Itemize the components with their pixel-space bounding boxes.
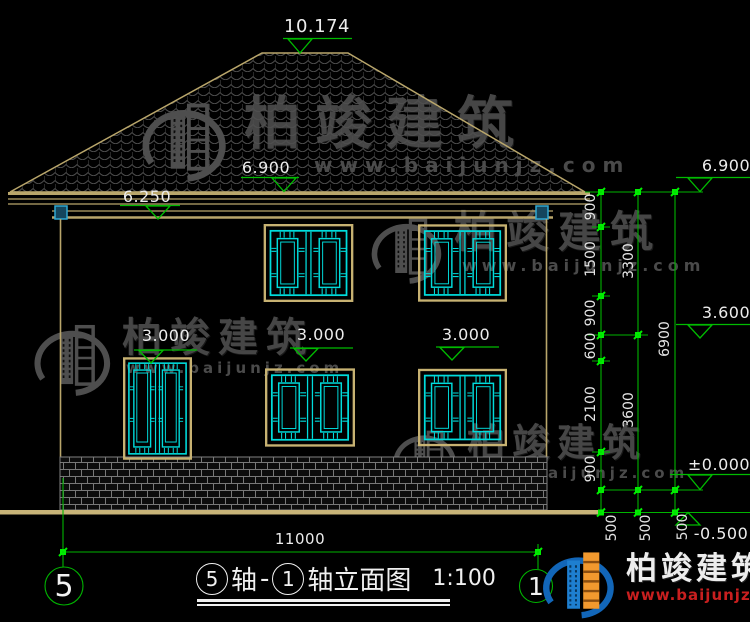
dim-col2-1: 3600 bbox=[621, 378, 637, 442]
drawing-title: 5 轴 - 1 轴立面图 1:100 bbox=[196, 560, 496, 597]
elevation-right-ground: -0.500 bbox=[686, 524, 750, 543]
elevation-eave-center: 6.900 bbox=[231, 158, 301, 177]
window-1f-right bbox=[419, 370, 506, 445]
door-1f-left bbox=[124, 358, 191, 458]
title-scale: 1:100 bbox=[432, 566, 495, 591]
title-word1: 轴 bbox=[231, 560, 257, 597]
elevation-floor1-left: 3.000 bbox=[131, 326, 201, 345]
title-axis-a: 5 bbox=[196, 563, 228, 595]
elevation-floor1-mid: 3.000 bbox=[286, 325, 356, 344]
window-2f-right bbox=[419, 225, 506, 300]
window-2f-left bbox=[265, 225, 352, 301]
gutter-bracket-icon bbox=[55, 206, 67, 219]
title-axis-b: 1 bbox=[272, 563, 304, 595]
title-underline bbox=[197, 604, 450, 606]
elevation-right-eave: 6.900 bbox=[691, 156, 750, 175]
ground-line bbox=[0, 510, 598, 515]
axis-left-label: 5 bbox=[44, 569, 84, 604]
title-underline bbox=[197, 599, 450, 602]
elevation-drawing: 柏竣建筑 www.baijunjz.com 柏竣建筑 www.baijunjz.… bbox=[0, 0, 750, 622]
dim-col2-0: 3300 bbox=[621, 229, 637, 293]
elevation-right-zero: ±0.000 bbox=[684, 455, 750, 474]
dim-bottom-width: 11000 bbox=[265, 530, 335, 548]
eave-lines bbox=[8, 194, 590, 218]
brick-plinth bbox=[60, 457, 547, 510]
brand-url: www.baijunjz.com bbox=[626, 586, 750, 604]
elevation-floor1-right: 3.000 bbox=[431, 325, 501, 344]
title-dash: - bbox=[260, 564, 269, 594]
elevation-right-floor2: 3.600 bbox=[691, 303, 750, 322]
dim-col1-4: 2100 bbox=[583, 372, 599, 436]
dim-col1-5: 900 bbox=[583, 437, 599, 501]
elevation-ridge: 10.174 bbox=[282, 16, 352, 37]
window-1f-mid bbox=[266, 370, 354, 446]
dim-col3-0: 6900 bbox=[657, 307, 673, 371]
brand-logo: 柏竣建筑 www.baijunjz.com bbox=[538, 546, 750, 620]
elevation-eave-left: 6.250 bbox=[112, 187, 182, 206]
dim-col1-3: 600 bbox=[583, 314, 599, 378]
brand-name: 柏竣建筑 bbox=[626, 552, 750, 586]
brand-logo-icon bbox=[538, 546, 622, 620]
gutter-bracket-icon bbox=[536, 206, 548, 219]
title-word2: 轴立面图 bbox=[307, 560, 411, 597]
